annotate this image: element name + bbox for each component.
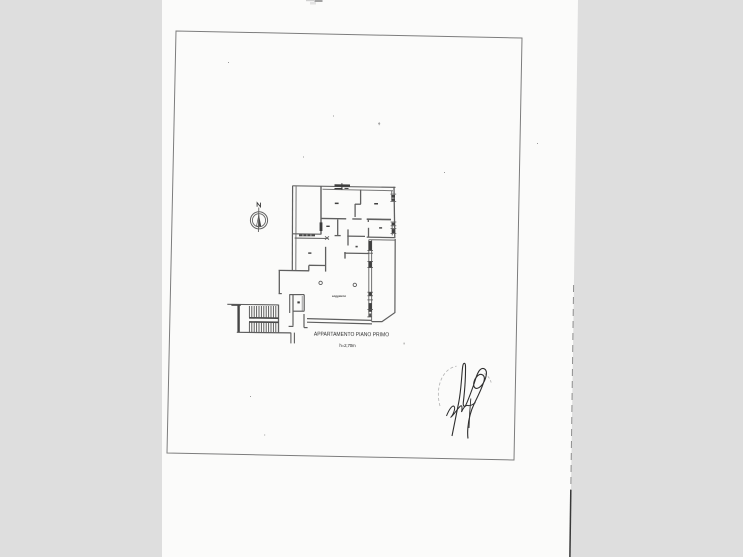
svg-text:h=2,70m: h=2,70m bbox=[339, 343, 356, 348]
svg-text:soggiorno: soggiorno bbox=[332, 294, 346, 298]
svg-text:APPARTAMENTO PIANO PRIMO: APPARTAMENTO PIANO PRIMO bbox=[314, 331, 389, 338]
